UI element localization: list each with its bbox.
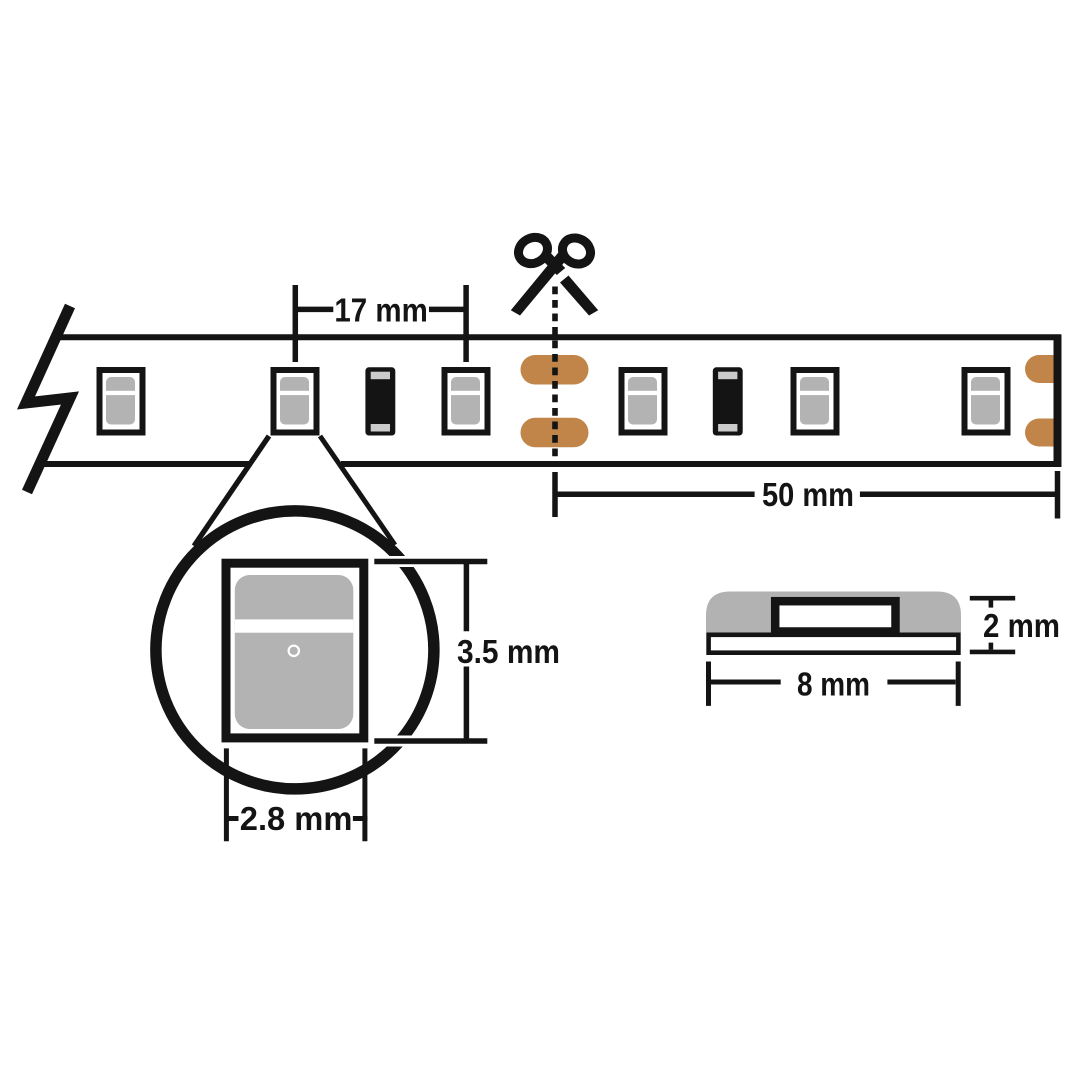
svg-text:2.8 mm: 2.8 mm	[240, 800, 353, 837]
svg-text:3.5 mm: 3.5 mm	[457, 633, 560, 670]
svg-text:2 mm: 2 mm	[983, 607, 1060, 644]
svg-text:17 mm: 17 mm	[334, 292, 427, 329]
svg-text:8 mm: 8 mm	[797, 666, 870, 703]
svg-text:50 mm: 50 mm	[762, 476, 854, 513]
